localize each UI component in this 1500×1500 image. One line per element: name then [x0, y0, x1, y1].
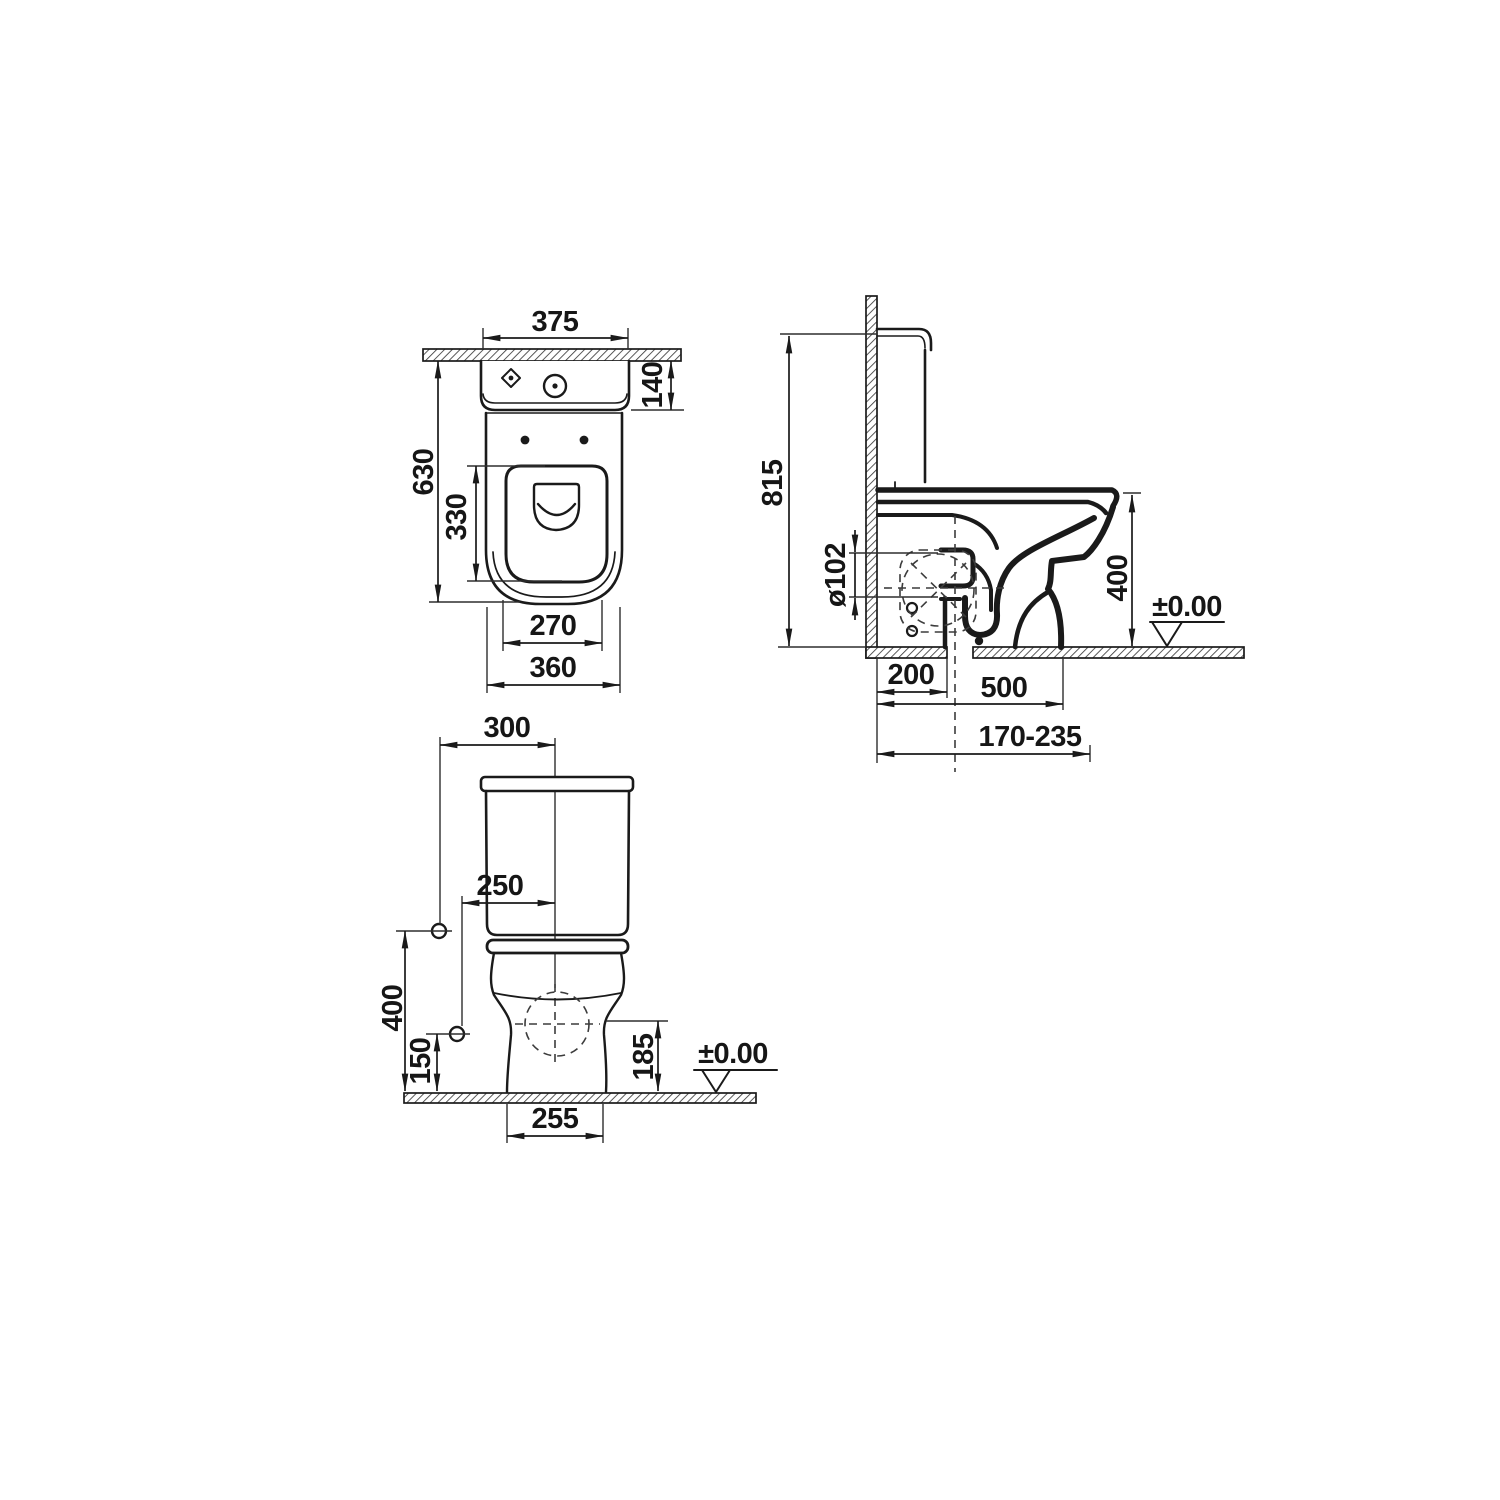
dim-label: 200: [888, 659, 935, 691]
side-floor-level-mark: ±0.00: [1150, 591, 1224, 646]
front-bowl-left-profile: [491, 953, 511, 1092]
front-dim-lower-fixing-height: 150: [405, 1034, 470, 1091]
plan-seat-hinge-hole-right: [580, 436, 589, 445]
level-label: ±0.00: [698, 1038, 768, 1070]
side-dim-outlet-diameter: ø102: [820, 530, 938, 620]
side-outlet-spigot: [941, 550, 973, 586]
front-dim-outlet-height: 185: [606, 1021, 668, 1091]
side-floor-section-left: [866, 647, 947, 658]
front-outlet-dashed: [515, 992, 600, 1056]
front-floor-level-mark: ±0.00: [694, 1038, 777, 1092]
plan-view: 375 140 630 330 270 360: [408, 306, 684, 693]
dim-label: 330: [441, 494, 473, 541]
side-wall-section: [866, 296, 877, 658]
dim-label: 375: [532, 306, 579, 338]
plan-flush-distributor-inner: [538, 504, 575, 515]
plan-dim-cistern-depth: 140: [631, 361, 684, 410]
dim-label: 300: [484, 712, 531, 744]
side-foot-inner-curve: [1015, 592, 1048, 647]
plan-dim-cistern-width: 375: [483, 306, 628, 349]
plan-dim-outlet-width: 270: [503, 600, 602, 651]
front-bowl-contour-line: [494, 993, 621, 1000]
dim-label: 360: [530, 652, 577, 684]
technical-drawing-canvas: 375 140 630 330 270 360: [0, 0, 1500, 1500]
front-cistern-lid: [481, 777, 633, 791]
plan-round-hole-center: [552, 383, 557, 388]
plan-wall-section: [423, 349, 681, 361]
level-triangle-icon: [1152, 622, 1182, 646]
dim-label: 255: [532, 1103, 579, 1135]
dim-label: 170-235: [979, 721, 1082, 753]
side-dim-outlet-adjustment: 170-235: [877, 721, 1090, 754]
dim-label: 270: [530, 610, 577, 642]
dim-label: 400: [377, 985, 409, 1032]
front-seat-band: [487, 940, 628, 953]
dim-label: 815: [757, 459, 789, 506]
dim-label: 185: [628, 1033, 660, 1080]
front-view: 300 250 400 150 185 255: [377, 712, 777, 1143]
dim-label: 150: [405, 1038, 437, 1085]
plan-diamond-hole-center: [509, 376, 514, 381]
side-cistern-lid-inner: [877, 336, 925, 348]
side-seat-ring: [878, 502, 1106, 513]
dim-label: 400: [1102, 555, 1134, 602]
plan-seat-hinge-hole-left: [521, 436, 530, 445]
dim-label: 250: [477, 870, 524, 902]
level-triangle-icon: [702, 1070, 730, 1092]
front-floor-section: [404, 1093, 756, 1103]
side-dim-overall-height: 815: [757, 334, 877, 646]
side-drain-point: [975, 637, 983, 645]
dim-label: ø102: [820, 543, 852, 607]
level-label: ±0.00: [1152, 591, 1222, 623]
side-view: 815 ø102 400 ±0.00 200 50: [757, 296, 1244, 772]
front-bowl-right-profile: [604, 953, 624, 1092]
dim-label: 500: [981, 672, 1028, 704]
side-rim-front-inner: [878, 515, 997, 548]
front-cistern-body: [486, 791, 629, 935]
front-dim-base-width: 255: [507, 1103, 603, 1143]
dim-label: 630: [408, 449, 440, 496]
side-dim-wall-to-fixing: 200: [877, 659, 947, 692]
wc-dimension-drawing: 375 140 630 330 270 360: [0, 0, 1500, 1500]
dim-label: 140: [637, 362, 669, 409]
